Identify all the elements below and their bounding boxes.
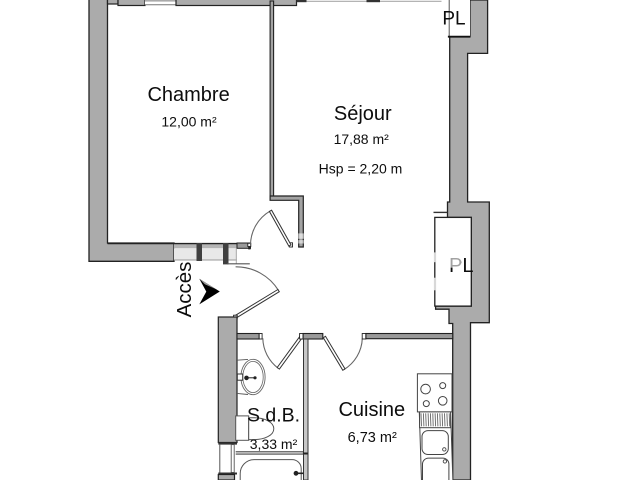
svg-text:12,00 m²: 12,00 m² — [161, 114, 217, 130]
svg-text:Séjour: Séjour — [334, 103, 392, 125]
svg-text:6,73 m²: 6,73 m² — [348, 430, 397, 446]
svg-text:Hsp = 2,20 m: Hsp = 2,20 m — [319, 161, 403, 177]
svg-text:Cuisine: Cuisine — [338, 399, 405, 421]
svg-text:17,88 m²: 17,88 m² — [334, 131, 390, 147]
svg-text:PL: PL — [442, 8, 465, 29]
svg-text:3,33 m²: 3,33 m² — [250, 436, 298, 452]
svg-text:S.d.B.: S.d.B. — [247, 405, 300, 427]
svg-text:Accès: Accès — [173, 262, 196, 318]
svg-text:Chambre: Chambre — [147, 84, 229, 106]
